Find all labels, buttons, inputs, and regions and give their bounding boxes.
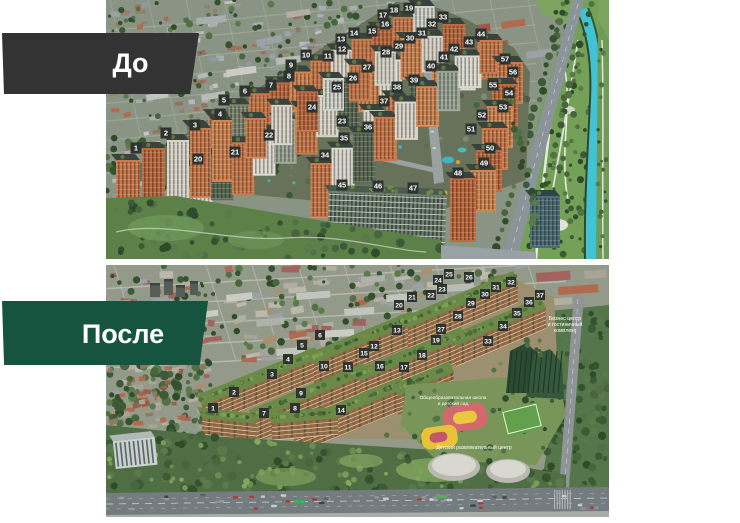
svg-text:38: 38: [393, 83, 401, 92]
svg-text:22: 22: [427, 292, 435, 299]
svg-text:3: 3: [193, 121, 197, 130]
svg-text:41: 41: [440, 53, 448, 62]
svg-text:16: 16: [376, 363, 384, 370]
svg-text:11: 11: [344, 364, 351, 371]
svg-text:37: 37: [380, 97, 388, 106]
svg-text:13: 13: [393, 327, 401, 334]
svg-text:19: 19: [405, 4, 413, 13]
svg-text:46: 46: [374, 182, 382, 191]
svg-text:2: 2: [232, 389, 236, 396]
svg-text:4: 4: [286, 356, 290, 363]
svg-text:26: 26: [465, 274, 473, 281]
svg-text:10: 10: [302, 51, 310, 60]
svg-text:10: 10: [320, 363, 328, 370]
svg-text:21: 21: [408, 294, 416, 301]
svg-text:25: 25: [333, 83, 341, 92]
svg-text:49: 49: [480, 159, 488, 168]
svg-text:27: 27: [363, 63, 371, 72]
svg-text:6: 6: [243, 87, 247, 96]
svg-text:Детский развлекательный центр: Детский развлекательный центр: [436, 444, 511, 451]
svg-text:45: 45: [338, 181, 346, 190]
svg-text:36: 36: [525, 299, 533, 306]
svg-text:17: 17: [400, 364, 408, 371]
svg-text:47: 47: [409, 184, 417, 193]
svg-text:35: 35: [340, 134, 348, 143]
svg-text:29: 29: [395, 42, 403, 51]
svg-text:33: 33: [484, 338, 492, 345]
svg-text:50: 50: [486, 144, 494, 153]
svg-text:19: 19: [432, 337, 440, 344]
svg-text:20: 20: [395, 302, 403, 309]
svg-text:32: 32: [428, 20, 436, 29]
svg-text:31: 31: [492, 284, 500, 291]
svg-text:7: 7: [269, 81, 273, 90]
svg-text:18: 18: [390, 6, 398, 15]
svg-text:3: 3: [270, 371, 274, 378]
svg-text:23: 23: [338, 117, 346, 126]
svg-text:20: 20: [194, 155, 202, 164]
svg-text:9: 9: [289, 61, 293, 70]
svg-text:29: 29: [467, 300, 475, 307]
svg-text:40: 40: [427, 62, 435, 71]
svg-text:Общеобразовательная школа: Общеобразовательная школа: [420, 395, 487, 401]
svg-text:54: 54: [505, 89, 514, 98]
svg-text:6: 6: [318, 332, 322, 339]
svg-text:1: 1: [134, 144, 138, 153]
svg-text:39: 39: [410, 76, 418, 85]
svg-text:18: 18: [418, 352, 426, 359]
svg-text:7: 7: [262, 410, 266, 417]
svg-text:14: 14: [337, 407, 345, 414]
svg-text:26: 26: [349, 74, 357, 83]
svg-text:2: 2: [164, 129, 168, 138]
svg-text:48: 48: [454, 169, 462, 178]
svg-text:56: 56: [509, 68, 517, 77]
svg-text:24: 24: [308, 103, 317, 112]
svg-text:и детский сад: и детский сад: [438, 400, 469, 407]
svg-text:55: 55: [489, 81, 497, 90]
svg-text:30: 30: [481, 291, 489, 298]
svg-text:36: 36: [364, 123, 372, 132]
svg-text:30: 30: [406, 34, 414, 43]
svg-text:31: 31: [418, 29, 426, 38]
svg-text:12: 12: [370, 343, 378, 350]
svg-text:23: 23: [438, 286, 446, 293]
svg-text:17: 17: [379, 11, 387, 20]
svg-text:28: 28: [382, 48, 390, 57]
svg-text:13: 13: [337, 35, 345, 44]
svg-text:9: 9: [299, 390, 303, 397]
svg-text:15: 15: [360, 350, 368, 357]
svg-text:33: 33: [439, 13, 447, 22]
svg-text:комплекс: комплекс: [554, 328, 577, 334]
svg-text:51: 51: [467, 125, 475, 134]
svg-text:35: 35: [513, 310, 521, 317]
svg-text:44: 44: [477, 30, 486, 39]
svg-text:8: 8: [287, 72, 291, 81]
svg-text:24: 24: [434, 277, 442, 284]
svg-text:22: 22: [265, 131, 273, 140]
svg-text:34: 34: [499, 323, 507, 330]
svg-text:27: 27: [437, 326, 445, 333]
svg-text:25: 25: [445, 271, 453, 278]
svg-text:12: 12: [338, 45, 346, 54]
svg-text:11: 11: [324, 52, 332, 61]
svg-text:и гостиничный: и гостиничный: [548, 321, 583, 328]
svg-text:8: 8: [293, 405, 297, 412]
svg-text:52: 52: [478, 111, 486, 120]
svg-text:16: 16: [381, 20, 389, 29]
svg-text:15: 15: [368, 27, 376, 36]
svg-text:5: 5: [222, 96, 226, 105]
svg-text:32: 32: [507, 279, 515, 286]
svg-text:28: 28: [454, 313, 462, 320]
svg-text:14: 14: [350, 29, 359, 38]
svg-text:42: 42: [450, 45, 458, 54]
svg-text:34: 34: [321, 151, 330, 160]
svg-text:37: 37: [536, 292, 544, 299]
svg-text:53: 53: [499, 103, 507, 112]
svg-text:43: 43: [465, 38, 473, 47]
svg-text:57: 57: [501, 55, 509, 64]
svg-text:5: 5: [300, 342, 304, 349]
svg-text:21: 21: [231, 148, 239, 157]
svg-text:1: 1: [211, 405, 215, 412]
